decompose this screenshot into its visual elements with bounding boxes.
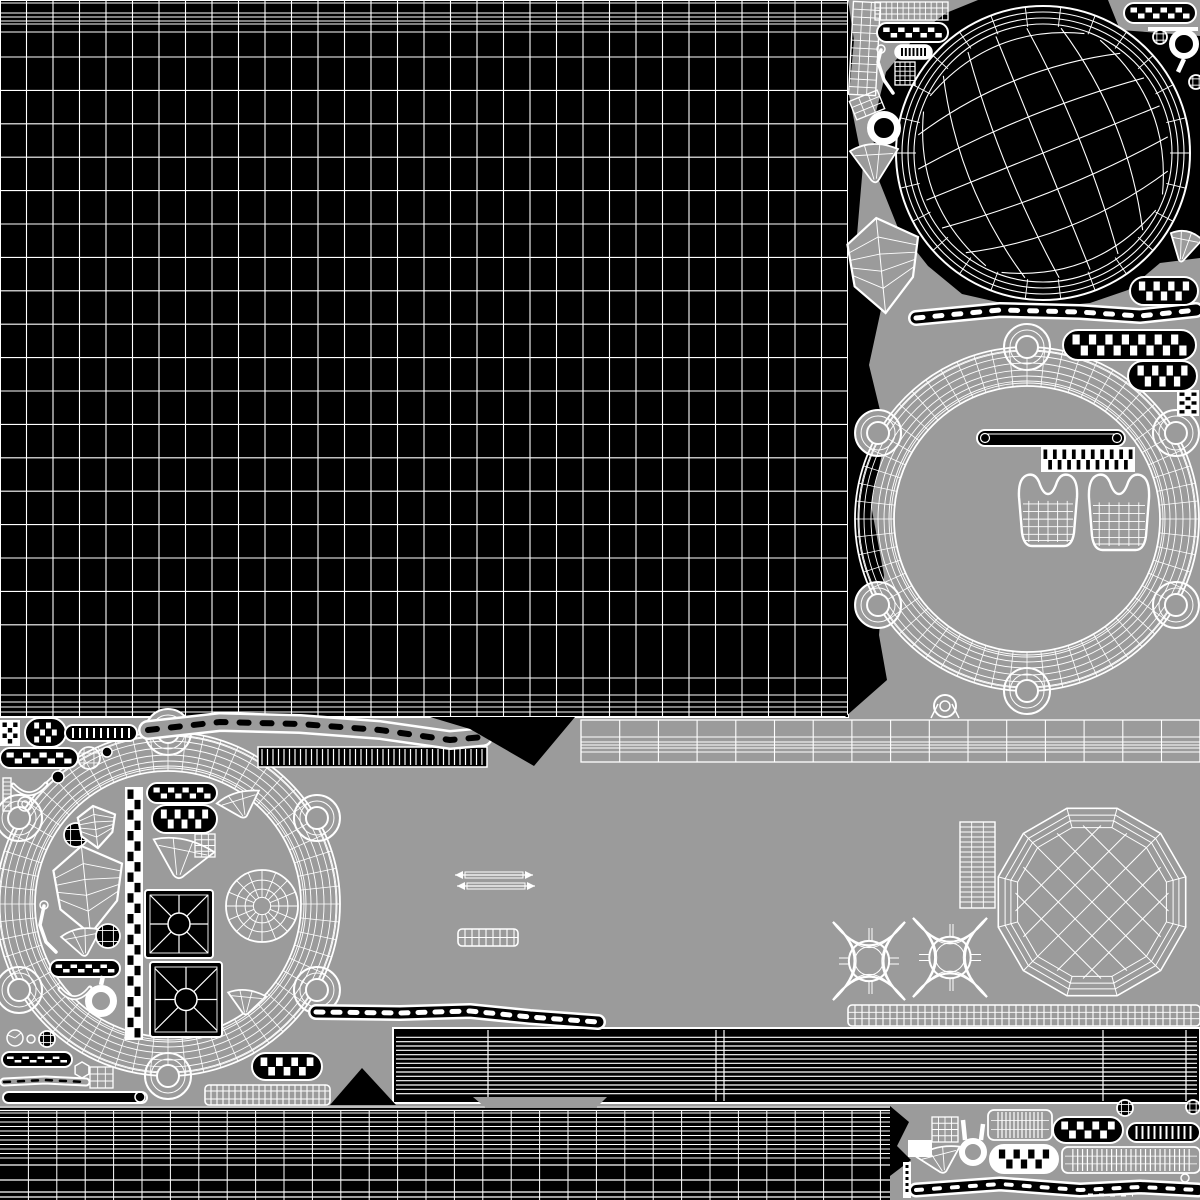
knob-c — [1117, 1100, 1133, 1116]
top-dot — [102, 747, 112, 757]
arrow-bar-b — [457, 882, 535, 890]
dash-column — [903, 1162, 911, 1198]
corner-bar — [1148, 27, 1198, 31]
thin-strip — [4, 1080, 86, 1082]
checker-plate — [1041, 447, 1135, 472]
accordion-b — [1062, 1147, 1200, 1173]
corner-knob-a — [1153, 30, 1167, 44]
grid-knob — [39, 1031, 55, 1047]
band-gap-notch — [473, 1097, 607, 1108]
invert-pill — [990, 1145, 1058, 1173]
edge-dot — [52, 771, 64, 783]
checker-column — [125, 787, 143, 1040]
stripe-band-bottom — [393, 1028, 1200, 1103]
bottom-strip — [916, 1184, 1198, 1190]
arrow-bar-a — [455, 871, 533, 879]
corner-knob-b — [1189, 75, 1200, 89]
top-checker — [0, 720, 20, 746]
barcode-band — [258, 747, 487, 767]
top-pill-b — [65, 725, 137, 741]
hub-panel-b — [150, 962, 222, 1037]
stripe-pill — [1127, 1123, 1200, 1142]
corner-pill — [1124, 3, 1196, 23]
bottom-grid-band — [0, 1106, 911, 1200]
white-chip — [908, 1140, 932, 1157]
accordion-a — [988, 1110, 1052, 1140]
black-bar — [3, 1092, 147, 1103]
pill-a — [1063, 330, 1196, 360]
uv-atlas-canvas — [0, 0, 1200, 1200]
lower-pill-a — [252, 1053, 322, 1080]
top-strip-pill — [0, 748, 78, 768]
hub-panel-a — [145, 890, 213, 958]
inner-pill-b — [152, 805, 217, 833]
col-pill — [877, 23, 948, 42]
uv-texture-atlas — [0, 0, 1200, 1200]
handle-bar — [977, 430, 1125, 446]
inner-pill-c — [50, 960, 120, 977]
inner-pill-a — [147, 783, 217, 803]
knob-b — [96, 924, 120, 948]
caterpillar — [895, 45, 932, 59]
web-disc — [226, 870, 298, 942]
pill-b — [1128, 361, 1197, 391]
top-pill-a — [25, 718, 66, 747]
base-grid — [0, 0, 848, 717]
knob-d — [1186, 1100, 1200, 1114]
lower-pill-b — [2, 1052, 72, 1067]
strip-under-sphere — [916, 310, 1196, 318]
tab-grid — [1177, 390, 1199, 416]
corner-pill-b — [1053, 1117, 1123, 1143]
blob-pill — [1130, 277, 1198, 305]
